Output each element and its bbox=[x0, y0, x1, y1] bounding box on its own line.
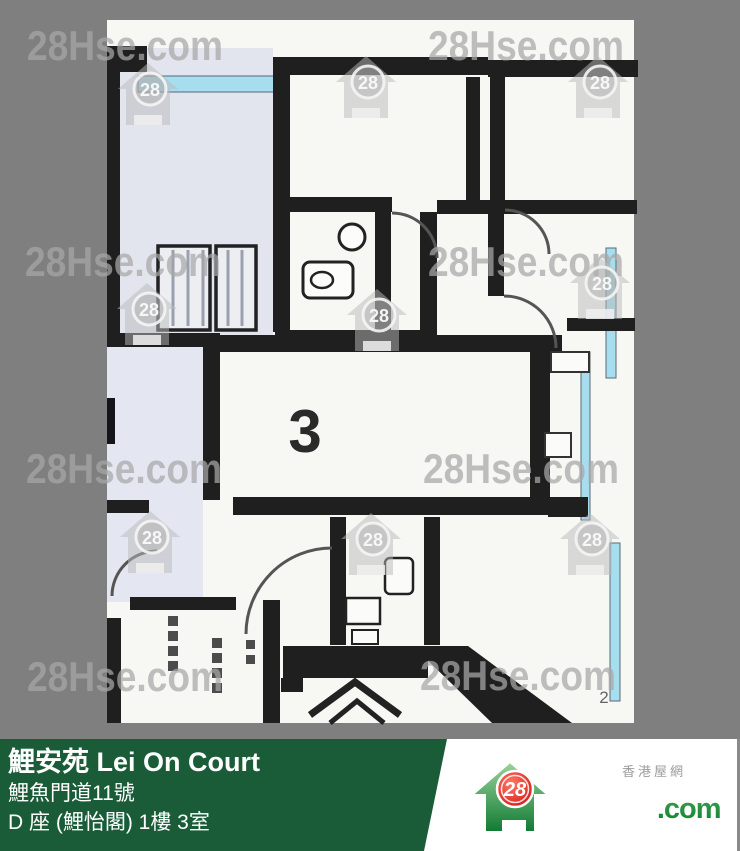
brand-suffix: .com bbox=[657, 793, 721, 826]
brand-tagline: 香港屋網 bbox=[622, 761, 686, 780]
unit-number-label: 3 bbox=[288, 398, 321, 465]
watermark-text: 28Hse.com bbox=[423, 445, 619, 492]
brand-wordmark: 28Hse.com bbox=[544, 783, 721, 828]
watermark-text: 28Hse.com bbox=[27, 653, 223, 700]
estate-unit: D 座 (鯉怡閣) 1樓 3室 bbox=[8, 808, 460, 837]
estate-address: 鯉魚門道11號 bbox=[8, 779, 460, 808]
watermark-text: 28Hse.com bbox=[27, 22, 223, 69]
estate-name: 鯉安苑 Lei On Court bbox=[8, 746, 460, 779]
28-badge-number: 28 bbox=[503, 779, 527, 801]
28hse-logo[interactable]: 28 香港屋網 28Hse.com bbox=[462, 739, 737, 851]
watermark-text: 28Hse.com bbox=[26, 445, 222, 492]
28hse-house-icon: 28 bbox=[470, 759, 550, 835]
info-banner: 鯉安苑 Lei On Court 鯉魚門道11號 D 座 (鯉怡閣) 1樓 3室 bbox=[0, 739, 740, 851]
watermark-text: 28Hse.com bbox=[25, 238, 221, 285]
floorplan-svg: 28 bbox=[0, 0, 740, 739]
watermark-text: 28Hse.com bbox=[420, 652, 616, 699]
brand-name: 28Hse bbox=[544, 782, 657, 829]
floorplan-photo: 28 bbox=[0, 0, 740, 739]
screenshot-root: 28 bbox=[0, 0, 740, 851]
estate-info-panel: 鯉安苑 Lei On Court 鯉魚門道11號 D 座 (鯉怡閣) 1樓 3室 bbox=[0, 739, 460, 851]
